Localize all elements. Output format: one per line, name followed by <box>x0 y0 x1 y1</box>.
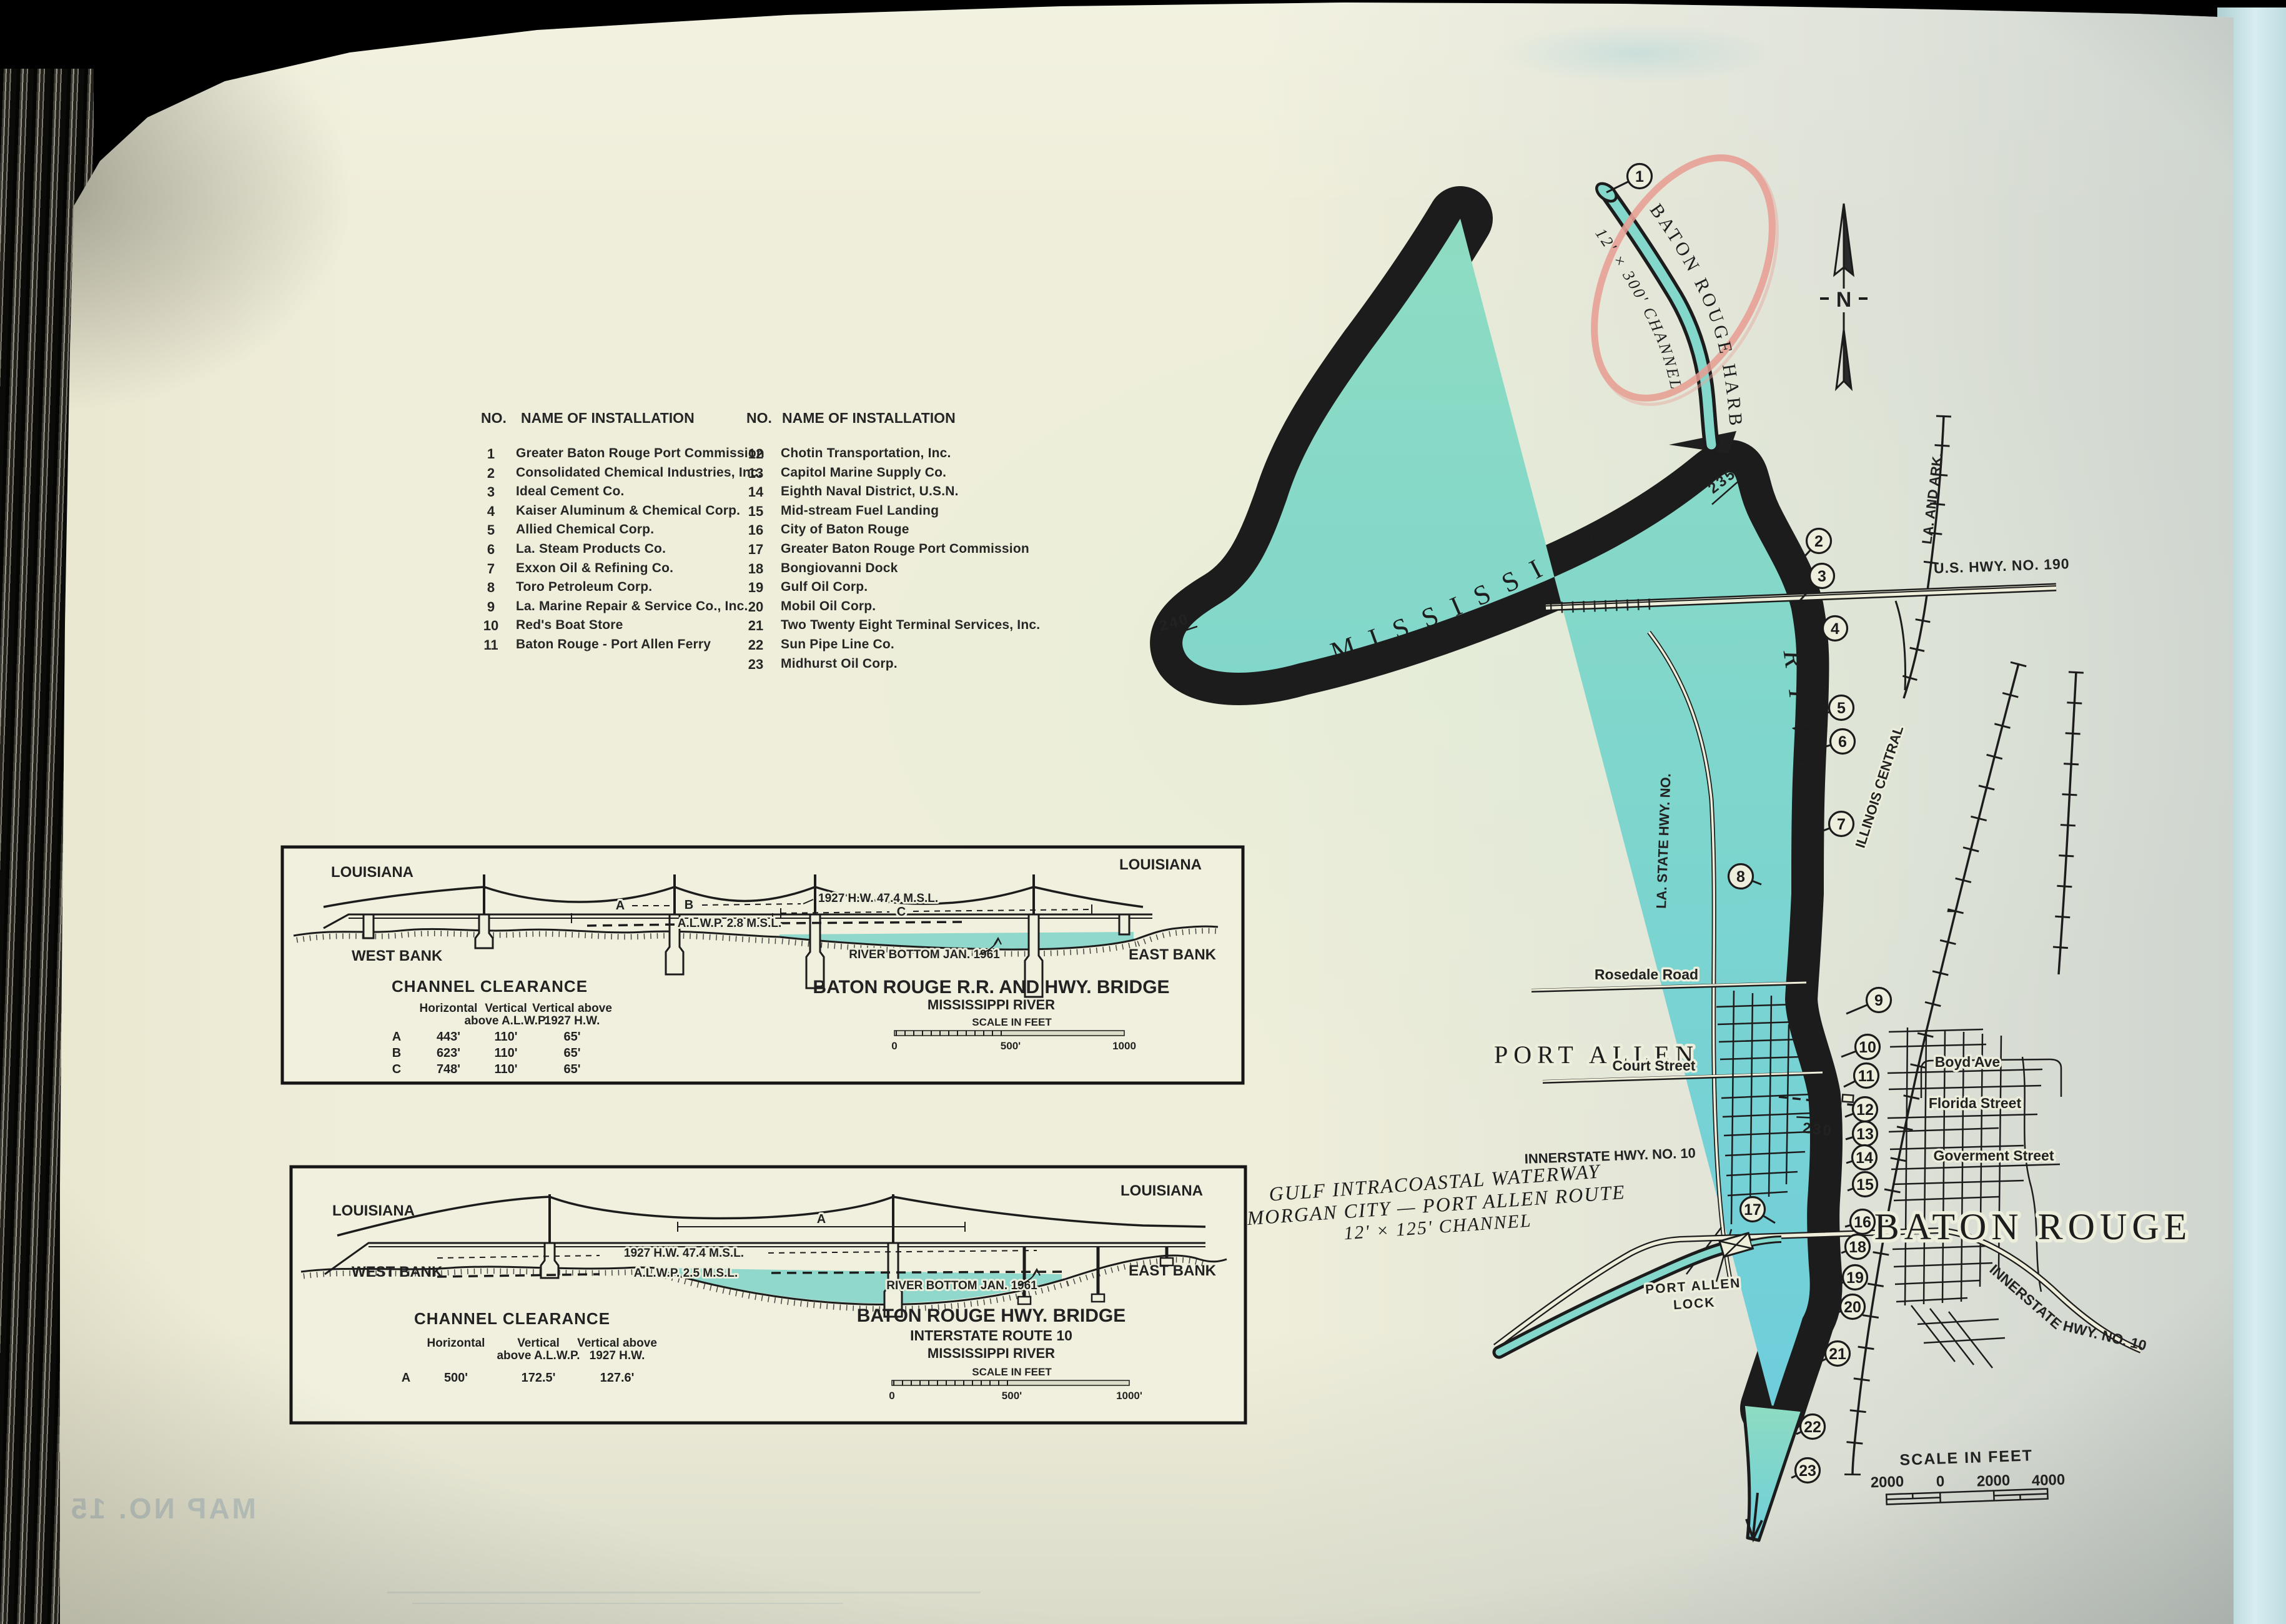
street-label-rosedale: Rosedale Road <box>1595 966 1698 983</box>
state-label: LOUISIANA <box>1119 856 1202 873</box>
svg-text:500': 500' <box>1002 1390 1022 1402</box>
svg-text:17: 17 <box>1744 1201 1761 1219</box>
map-marker-7: 7 <box>1821 812 1854 836</box>
svg-text:3: 3 <box>1818 568 1826 585</box>
bridge2-title: BATON ROUGE HWY. BRIDGE <box>857 1305 1126 1326</box>
baton-rouge-streets <box>1888 1027 2061 1368</box>
north-label: N <box>1836 288 1852 312</box>
svg-text:0: 0 <box>1936 1473 1944 1490</box>
svg-text:2000: 2000 <box>1976 1472 2010 1490</box>
svg-text:21: 21 <box>1829 1345 1846 1363</box>
svg-text:14: 14 <box>1856 1149 1873 1167</box>
map-marker-18: 18 <box>1841 1235 1870 1259</box>
svg-text:748': 748' <box>437 1062 460 1076</box>
bridge-diagram-rr-hwy: LOUISIANA LOUISIANA <box>282 847 1243 1083</box>
svg-text:A: A <box>817 1212 826 1226</box>
hw-label: 1927 H.W. 47.4 M.S.L. <box>624 1247 744 1260</box>
svg-text:110': 110' <box>494 1062 517 1076</box>
bridge1-subtitle: MISSISSIPPI RIVER <box>928 997 1055 1013</box>
svg-text:Vertical: Vertical <box>517 1337 560 1350</box>
svg-text:15: 15 <box>1856 1176 1874 1194</box>
alwp-label: A.L.W.P. 2.8 M.S.L. <box>678 917 781 930</box>
map-svg: LA. AND ARK. ILLINOIS CENTRAL U.S. HWY. … <box>0 0 2286 1624</box>
svg-text:SCALE IN FEET: SCALE IN FEET <box>972 1016 1052 1028</box>
river-label-river: RIVER <box>0 0 1821 798</box>
svg-text:623': 623' <box>437 1046 460 1060</box>
svg-text:0: 0 <box>891 1040 897 1052</box>
north-arrow: N <box>1820 204 1868 389</box>
bank-label: EAST BANK <box>1129 1262 1217 1279</box>
bridge2-subtitle: MISSISSIPPI RIVER <box>928 1345 1055 1361</box>
svg-text:SCALE IN FEET: SCALE IN FEET <box>972 1366 1052 1378</box>
svg-text:443': 443' <box>437 1030 460 1044</box>
svg-text:22: 22 <box>1804 1419 1821 1436</box>
map-marker-19: 19 <box>1839 1265 1868 1290</box>
svg-text:B: B <box>685 898 693 912</box>
bank-label: WEST BANK <box>352 1264 443 1280</box>
alwp-label: A.L.W.P. 2.5 M.S.L. <box>634 1267 738 1280</box>
svg-text:500': 500' <box>444 1371 468 1385</box>
svg-text:11: 11 <box>1858 1067 1875 1085</box>
svg-text:Horizontal: Horizontal <box>420 1002 478 1015</box>
map-scale: SCALE IN FEET 2000 0 2000 4000 <box>1869 1446 2066 1505</box>
svg-text:13: 13 <box>1856 1126 1874 1143</box>
svg-text:0: 0 <box>889 1390 894 1402</box>
svg-text:1000: 1000 <box>1112 1040 1136 1052</box>
railroad-east <box>2059 671 2076 974</box>
svg-text:172.5': 172.5' <box>522 1371 556 1385</box>
svg-text:A: A <box>392 1030 401 1044</box>
svg-text:4: 4 <box>1831 620 1839 638</box>
interstate-10-label-east-2: HWY. NO. 10 <box>2061 1317 2148 1354</box>
svg-text:19: 19 <box>1846 1269 1864 1287</box>
svg-text:9: 9 <box>1874 992 1883 1009</box>
map-marker-15: 15 <box>1848 1172 1878 1197</box>
interstate-10-label-east-1: INNERSTATE <box>1987 1261 2065 1332</box>
red-annotation-oval <box>1557 127 1814 434</box>
svg-text:1000': 1000' <box>1116 1390 1142 1402</box>
svg-text:A: A <box>402 1371 410 1385</box>
railroad-label-la-ark: LA. AND ARK. <box>1919 452 1946 545</box>
map-marker-16: 16 <box>1845 1210 1875 1234</box>
bank-label: EAST BANK <box>1129 946 1217 963</box>
svg-text:C: C <box>897 905 906 919</box>
svg-text:1927 H.W.: 1927 H.W. <box>590 1349 645 1362</box>
svg-text:8: 8 <box>1736 868 1745 886</box>
svg-text:16: 16 <box>1854 1214 1871 1231</box>
svg-text:above A.L.W.P.: above A.L.W.P. <box>464 1014 547 1027</box>
svg-text:65': 65' <box>563 1062 580 1076</box>
svg-text:A: A <box>616 899 625 913</box>
svg-text:2: 2 <box>1814 533 1823 550</box>
svg-text:20: 20 <box>1844 1299 1861 1316</box>
svg-text:12: 12 <box>1856 1101 1874 1119</box>
map-marker-1: 1 <box>1606 164 1652 193</box>
svg-text:127.6': 127.6' <box>600 1371 635 1385</box>
svg-text:65': 65' <box>563 1030 580 1044</box>
clearance-title: CHANNEL CLEARANCE <box>392 977 588 996</box>
svg-text:4000: 4000 <box>2031 1472 2065 1490</box>
svg-text:Vertical above: Vertical above <box>532 1002 612 1015</box>
bank-label: WEST BANK <box>352 948 443 964</box>
svg-text:5: 5 <box>1837 700 1846 717</box>
bridge2-route: INTERSTATE ROUTE 10 <box>910 1327 1072 1344</box>
map-marker-11: 11 <box>1844 1064 1879 1088</box>
map-marker-13: 13 <box>1846 1122 1878 1146</box>
railroad-la-and-ark: LA. AND ARK. <box>1896 415 1946 698</box>
lock-label-2: LOCK <box>1673 1295 1716 1313</box>
map-marker-14: 14 <box>1846 1146 1877 1170</box>
svg-text:1: 1 <box>1635 168 1644 186</box>
svg-text:6: 6 <box>1838 733 1847 751</box>
svg-text:65': 65' <box>563 1046 580 1060</box>
svg-text:23: 23 <box>1799 1462 1816 1480</box>
svg-text:Vertical: Vertical <box>485 1002 527 1015</box>
hwy-190-label: U.S. HWY. NO. 190 <box>1933 555 2069 577</box>
street-label-court: Court Street <box>1613 1057 1696 1074</box>
railroad-label-illinois-central: ILLINOIS CENTRAL <box>1852 724 1906 850</box>
svg-text:2000: 2000 <box>1870 1473 1904 1492</box>
svg-text:1927 H.W.: 1927 H.W. <box>545 1014 600 1027</box>
map-marker-9: 9 <box>1846 988 1891 1014</box>
svg-text:7: 7 <box>1837 816 1846 833</box>
map-marker-23: 23 <box>1791 1458 1820 1483</box>
svg-text:10: 10 <box>1859 1039 1876 1056</box>
city-label-baton-rouge: BATON ROUGE <box>1874 1206 2192 1247</box>
atlas-page: MAP NO. 15 NO. NAME OF INSTALLATION 1Gre… <box>0 0 2286 1624</box>
svg-text:B: B <box>392 1046 401 1060</box>
river-bottom-label: RIVER BOTTOM JAN. 1961 <box>886 1279 1037 1292</box>
svg-text:Horizontal: Horizontal <box>427 1337 485 1350</box>
svg-text:above A.L.W.P.: above A.L.W.P. <box>497 1349 580 1362</box>
svg-text:110': 110' <box>494 1030 517 1044</box>
street-label-government: Goverment Street <box>1933 1147 2054 1164</box>
state-label: LOUISIANA <box>331 864 413 881</box>
svg-text:Vertical above: Vertical above <box>577 1337 657 1350</box>
state-label: LOUISIANA <box>332 1202 415 1219</box>
hw-label: 1927 H.W. 47.4 M.S.L. <box>818 892 938 905</box>
svg-text:C: C <box>392 1062 401 1076</box>
svg-text:500': 500' <box>1001 1040 1021 1052</box>
state-label: LOUISIANA <box>1121 1182 1203 1199</box>
map-marker-10: 10 <box>1841 1035 1880 1059</box>
svg-text:18: 18 <box>1849 1239 1866 1256</box>
river-bottom-label: RIVER BOTTOM JAN. 1961 <box>849 948 1000 961</box>
svg-text:230: 230 <box>1802 1120 1834 1140</box>
bridge-diagram-i10: LOUISIANA LOUISIANA A <box>291 1167 1245 1423</box>
waterway-caption: GULF INTRACOASTAL WATERWAY MORGAN CITY —… <box>1244 1158 1628 1250</box>
bridge1-title: BATON ROUGE R.R. AND HWY. BRIDGE <box>813 977 1169 998</box>
street-label-boyd: Boyd Ave <box>1935 1054 2000 1070</box>
map-scale-title: SCALE IN FEET <box>1899 1447 2033 1468</box>
svg-text:110': 110' <box>494 1046 517 1060</box>
clearance-title: CHANNEL CLEARANCE <box>414 1309 610 1328</box>
street-label-florida: Florida Street <box>1929 1095 2022 1111</box>
